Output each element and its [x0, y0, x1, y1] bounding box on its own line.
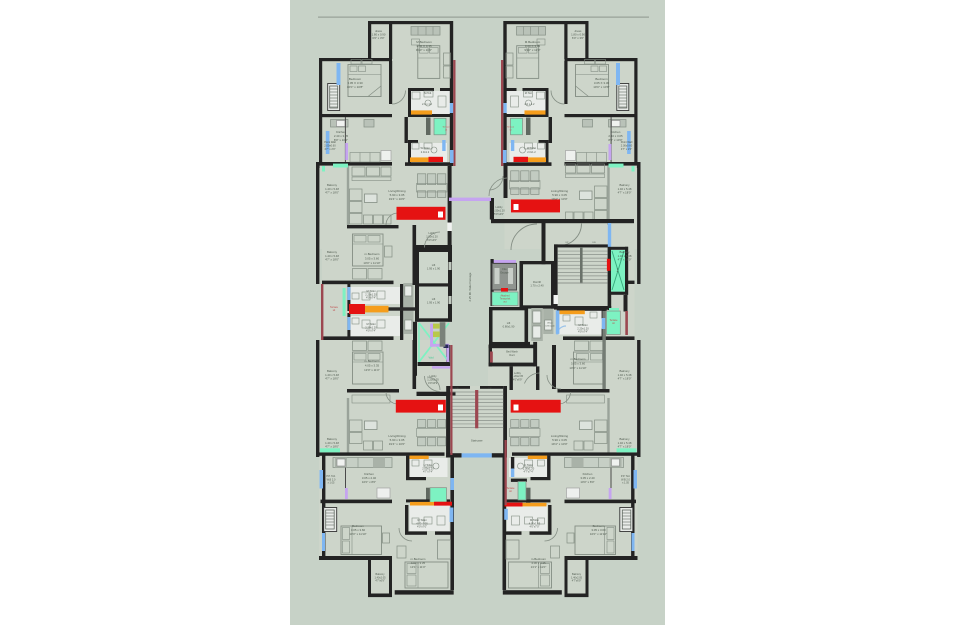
svg-text:2.00x0.60: 2.00x0.60 [324, 143, 336, 147]
svg-text:1.20x2.05: 1.20x2.05 [427, 377, 439, 381]
svg-text:M.Toil.: M.Toil. [525, 91, 533, 95]
svg-text:Wash: Wash [547, 323, 553, 325]
svg-text:5'0"x4'0": 5'0"x4'0" [494, 212, 504, 216]
svg-text:Lift: Lift [432, 263, 436, 267]
svg-text:Flat lift: Flat lift [533, 280, 541, 284]
svg-text:DN: DN [488, 388, 492, 390]
svg-text:0.90 wide: 0.90 wide [545, 326, 555, 328]
svg-text:6'0" x 3'0": 6'0" x 3'0" [372, 36, 384, 40]
svg-text:DN: DN [592, 242, 596, 244]
svg-text:10'0" x 10'8": 10'0" x 10'8" [347, 85, 363, 89]
svg-text:2.0 x 1.2: 2.0 x 1.2 [525, 102, 536, 106]
svg-text:4'0"x6'9": 4'0"x6'9" [513, 378, 523, 381]
svg-text:4'0"x7'4": 4'0"x7'4" [366, 296, 376, 300]
svg-text:6'0" x 3'0": 6'0" x 3'0" [572, 36, 584, 40]
svg-text:sit: sit [509, 490, 512, 493]
svg-text:Terrace/sit: Terrace/sit [500, 298, 511, 301]
svg-text:4'7" x 18'0": 4'7" x 18'0" [325, 377, 339, 381]
svg-text:9'10" x 11'0": 9'10" x 11'0" [524, 48, 540, 52]
svg-text:10'0" x 8'0": 10'0" x 8'0" [362, 480, 376, 484]
svg-text:10'0" x 8'0": 10'0" x 8'0" [580, 480, 594, 484]
svg-text:4'7" x 18'0": 4'7" x 18'0" [325, 191, 339, 195]
svg-text:4'7" x 18'0": 4'7" x 18'0" [618, 377, 632, 381]
svg-text:Lift: Lift [432, 297, 436, 301]
svg-text:Lobby: Lobby [495, 205, 503, 209]
svg-text:Duct: Duct [509, 354, 514, 357]
svg-text:13'1" x 11'0": 13'1" x 11'0" [531, 565, 547, 569]
svg-text:13'1" x 11'0": 13'1" x 11'0" [410, 565, 426, 569]
svg-text:Terrace: Terrace [442, 126, 450, 129]
svg-text:2.00x0.60: 2.00x0.60 [621, 143, 633, 147]
svg-text:3.05 x 3.60: 3.05 x 3.60 [571, 361, 586, 365]
svg-text:9'10" x 11'0": 9'10" x 11'0" [416, 48, 432, 52]
svg-text:Terrace: Terrace [507, 126, 515, 129]
svg-text:8'0" x 10'0": 8'0" x 10'0" [334, 138, 348, 142]
svg-text:19'4" x 10'0": 19'4" x 10'0" [551, 197, 567, 201]
svg-text:m.Bedroom: m.Bedroom [571, 357, 587, 361]
svg-text:1.95 x 1.90: 1.95 x 1.90 [427, 301, 441, 305]
svg-text:19'4" x 10'0": 19'4" x 10'0" [389, 442, 405, 446]
svg-text:x 1.05: x 1.05 [622, 482, 629, 485]
svg-text:Escape: Escape [500, 271, 509, 274]
svg-text:W.Toilet: W.Toilet [527, 146, 536, 150]
svg-text:0.80x1.90: 0.80x1.90 [503, 325, 515, 329]
svg-text:5'0"x4'0": 5'0"x4'0" [427, 238, 437, 242]
svg-text:4'7" x 2'0": 4'7" x 2'0" [324, 147, 335, 151]
svg-text:sit: sit [333, 309, 336, 312]
svg-text:1.70 x 2.40: 1.70 x 2.40 [530, 284, 544, 288]
svg-text:4'7" x 2'0": 4'7" x 2'0" [621, 147, 632, 151]
svg-text:3.05 x 3.60: 3.05 x 3.60 [365, 256, 380, 260]
svg-text:4'0"x7'4": 4'0"x7'4" [578, 330, 588, 334]
svg-text:m.Bedroom: m.Bedroom [365, 359, 381, 363]
svg-text:out: out [503, 301, 507, 304]
svg-text:4'7" x 18'0": 4'7" x 18'0" [618, 258, 632, 262]
svg-text:Attached: Attached [500, 295, 510, 298]
svg-text:10'0" x 11'10": 10'0" x 11'10" [363, 261, 380, 265]
svg-text:4'7"x6'9": 4'7"x6'9" [375, 580, 385, 583]
svg-text:M.Toil.: M.Toil. [424, 91, 432, 95]
svg-text:x 1.05: x 1.05 [328, 482, 335, 485]
svg-text:1.95 x 1.90: 1.95 x 1.90 [427, 267, 441, 271]
svg-text:W.Toilet: W.Toilet [420, 146, 429, 150]
svg-text:10'0" x 10'8": 10'0" x 10'8" [593, 85, 609, 89]
svg-text:Lift: Lift [507, 321, 511, 325]
svg-text:2.25 Mt. Wide Passage: 2.25 Mt. Wide Passage [468, 272, 472, 301]
svg-text:19'4" x 10'0": 19'4" x 10'0" [389, 197, 405, 201]
svg-text:sit: sit [612, 322, 615, 325]
svg-text:4'7"x7'4": 4'7"x7'4" [524, 470, 534, 474]
svg-text:1.50x1.20: 1.50x1.20 [493, 208, 505, 212]
svg-text:13'0" x 11'0": 13'0" x 11'0" [364, 368, 380, 372]
svg-text:4.05 x 3.35: 4.05 x 3.35 [365, 363, 380, 367]
svg-text:4'0"x7'4": 4'0"x7'4" [366, 329, 376, 333]
svg-text:19'4" x 10'0": 19'4" x 10'0" [551, 442, 567, 446]
svg-text:10'0" x 11'10": 10'0" x 11'10" [349, 532, 366, 536]
svg-text:8'0" x 10'0": 8'0" x 10'0" [608, 138, 622, 142]
svg-text:2.0x1.2: 2.0x1.2 [527, 150, 536, 154]
svg-text:4'7" x 18'0": 4'7" x 18'0" [325, 258, 339, 262]
svg-text:m.Bedroom: m.Bedroom [365, 252, 381, 256]
svg-text:4'7"x6'9": 4'7"x6'9" [572, 580, 582, 583]
svg-text:4'7" x 18'0": 4'7" x 18'0" [618, 191, 632, 195]
svg-text:4'7" x 18'0": 4'7" x 18'0" [325, 445, 339, 449]
svg-text:Void: Void [428, 356, 434, 360]
svg-text:4'0"x7'0": 4'0"x7'0" [530, 525, 540, 529]
svg-text:10'0" x 11'10": 10'0" x 11'10" [569, 366, 586, 370]
svg-text:2.0 x 1.2: 2.0 x 1.2 [422, 102, 433, 106]
svg-text:4'7" x 18'0": 4'7" x 18'0" [618, 445, 632, 449]
svg-text:Staircase: Staircase [471, 439, 483, 443]
svg-text:duct: duct [616, 268, 619, 273]
svg-text:2.0x1.2: 2.0x1.2 [421, 150, 430, 154]
svg-text:4'7"x7'4": 4'7"x7'4" [423, 470, 433, 474]
svg-text:4'0"x7'0": 4'0"x7'0" [417, 525, 427, 529]
svg-text:10'0" x 11'10": 10'0" x 11'10" [590, 532, 607, 536]
